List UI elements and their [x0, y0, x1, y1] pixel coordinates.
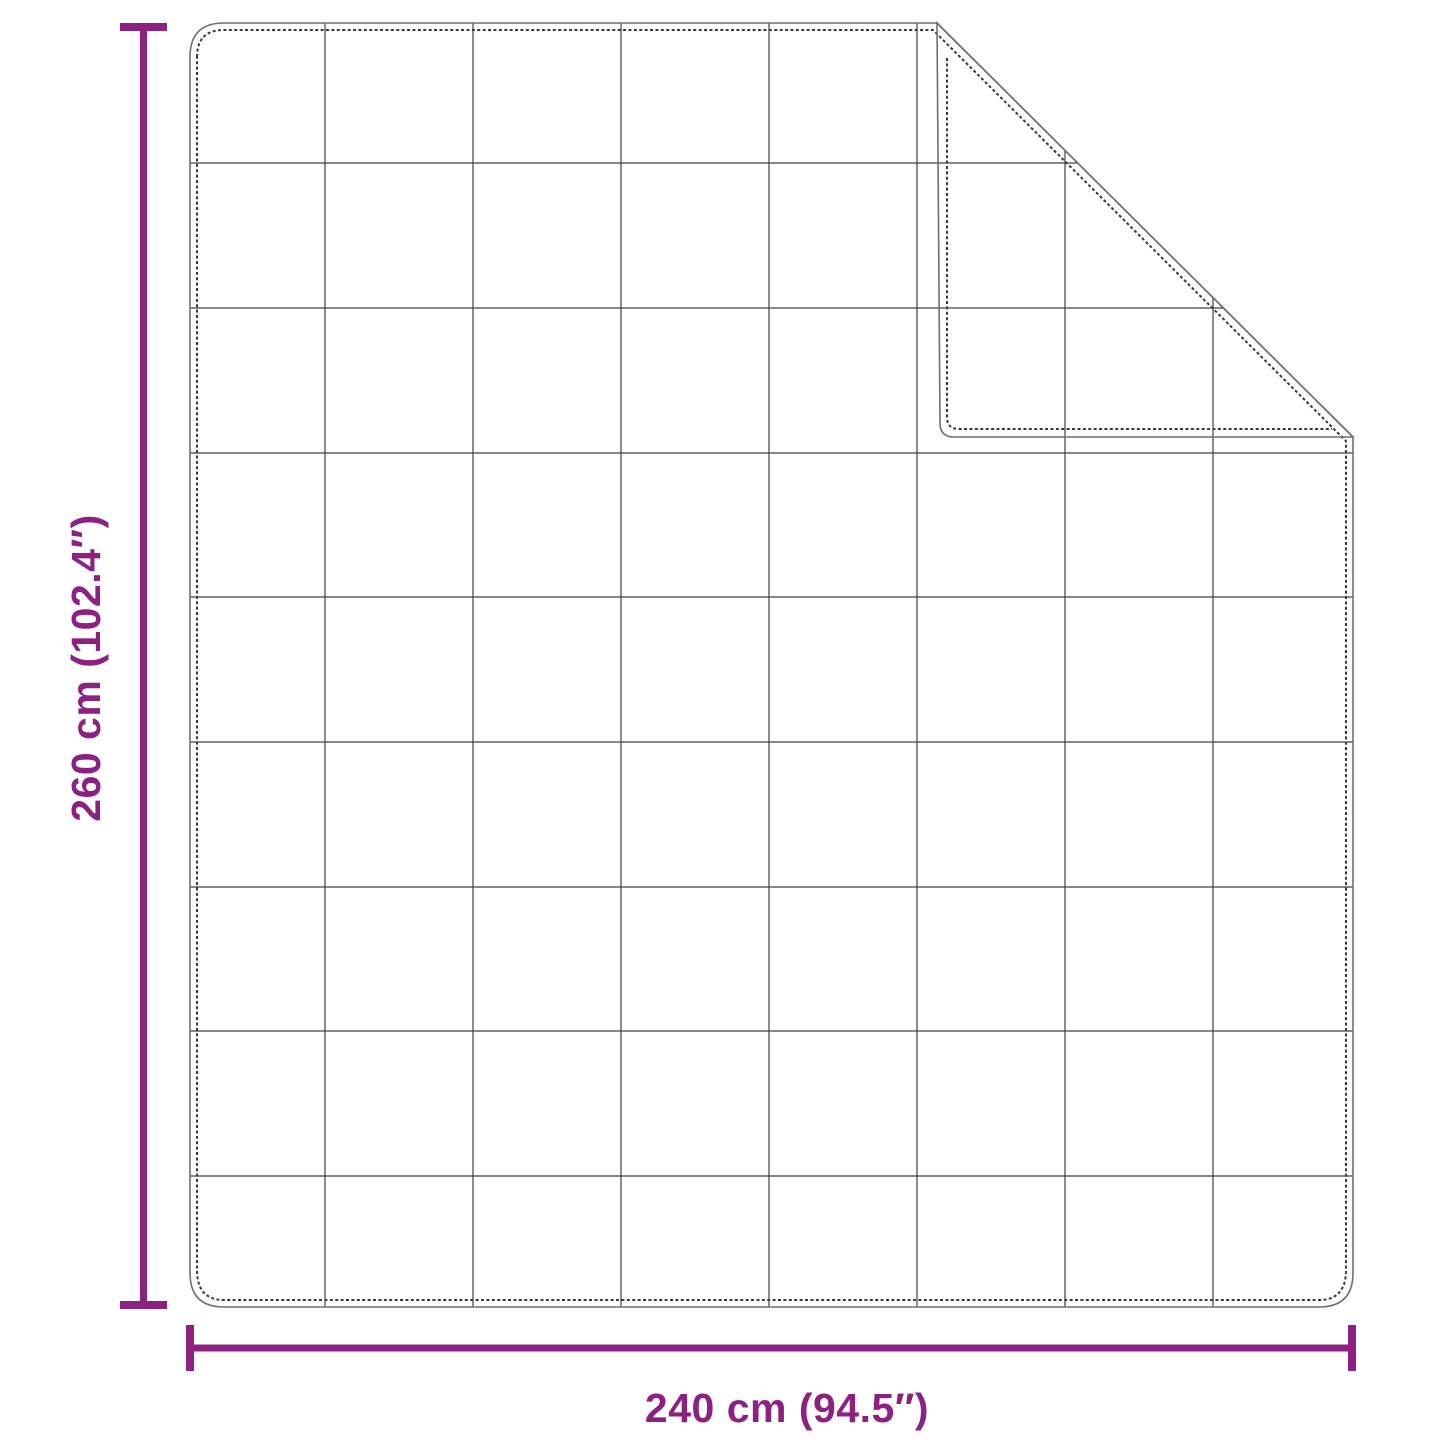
height-dimension-line: [120, 27, 167, 1305]
blanket-body: [190, 23, 1353, 1307]
width-dimension-line: [190, 1325, 1352, 1371]
blanket-diagram-canvas: 260 cm (102.4″) 240 cm (94.5″): [0, 0, 1445, 1445]
height-label: 260 cm (102.4″): [63, 514, 109, 822]
width-label: 240 cm (94.5″): [645, 1385, 929, 1431]
dimension-diagram: 260 cm (102.4″) 240 cm (94.5″): [0, 0, 1445, 1445]
